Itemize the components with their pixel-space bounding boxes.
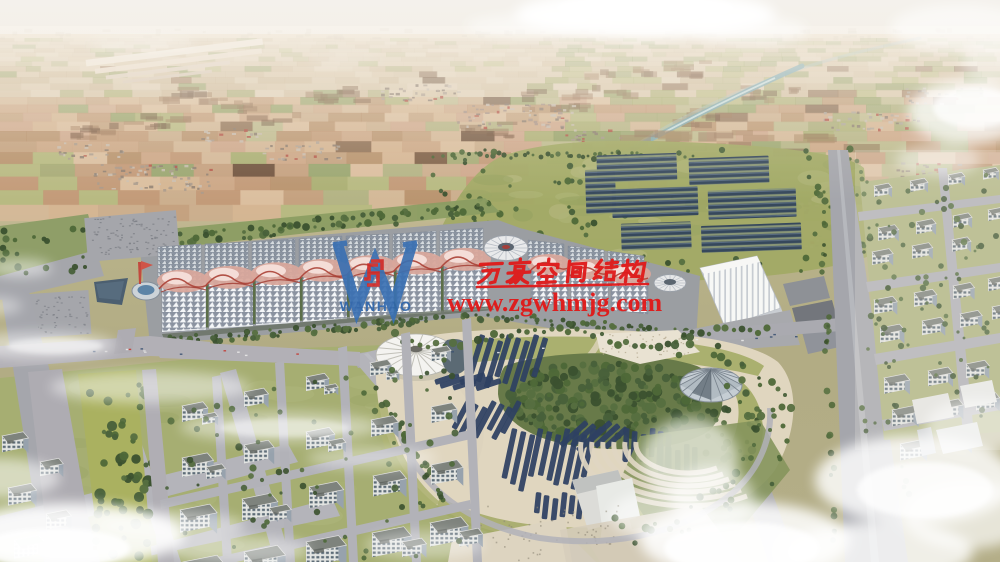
svg-text:WANHAO: WANHAO <box>340 298 413 314</box>
svg-text:www.zgwhmjg.com: www.zgwhmjg.com <box>447 288 663 317</box>
